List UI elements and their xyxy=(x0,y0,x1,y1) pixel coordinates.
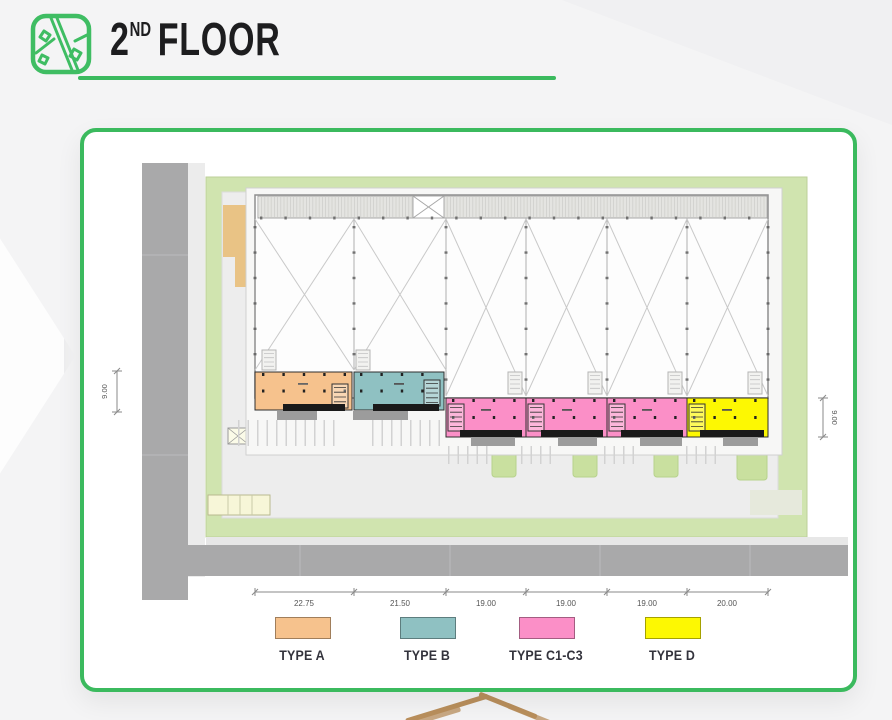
legend-label-type-b: TYPE B xyxy=(404,648,450,663)
legend-swatch-type-c xyxy=(519,617,575,639)
background-hexagon-shape xyxy=(0,232,64,480)
legend-label-type-d: TYPE D xyxy=(649,648,695,663)
legend-label-type-c: TYPE C1-C3 xyxy=(509,648,583,663)
legend-swatch-type-b xyxy=(400,617,456,639)
legend-label-type-a: TYPE A xyxy=(279,648,325,663)
title-underline xyxy=(78,76,556,80)
map-logo-icon xyxy=(30,13,92,75)
floor-plan-card xyxy=(80,128,857,692)
floor-word: FLOOR xyxy=(158,13,281,65)
legend-swatch-type-a xyxy=(275,617,331,639)
slide: 2NDFLOOR xyxy=(0,0,892,720)
background-corner-shade xyxy=(562,0,892,125)
gold-chevron-left xyxy=(405,694,489,720)
page-title: 2NDFLOOR xyxy=(110,14,340,65)
floor-suffix: ND xyxy=(130,19,151,41)
legend-swatch-type-d xyxy=(645,617,701,639)
floor-number: 2 xyxy=(110,13,130,65)
